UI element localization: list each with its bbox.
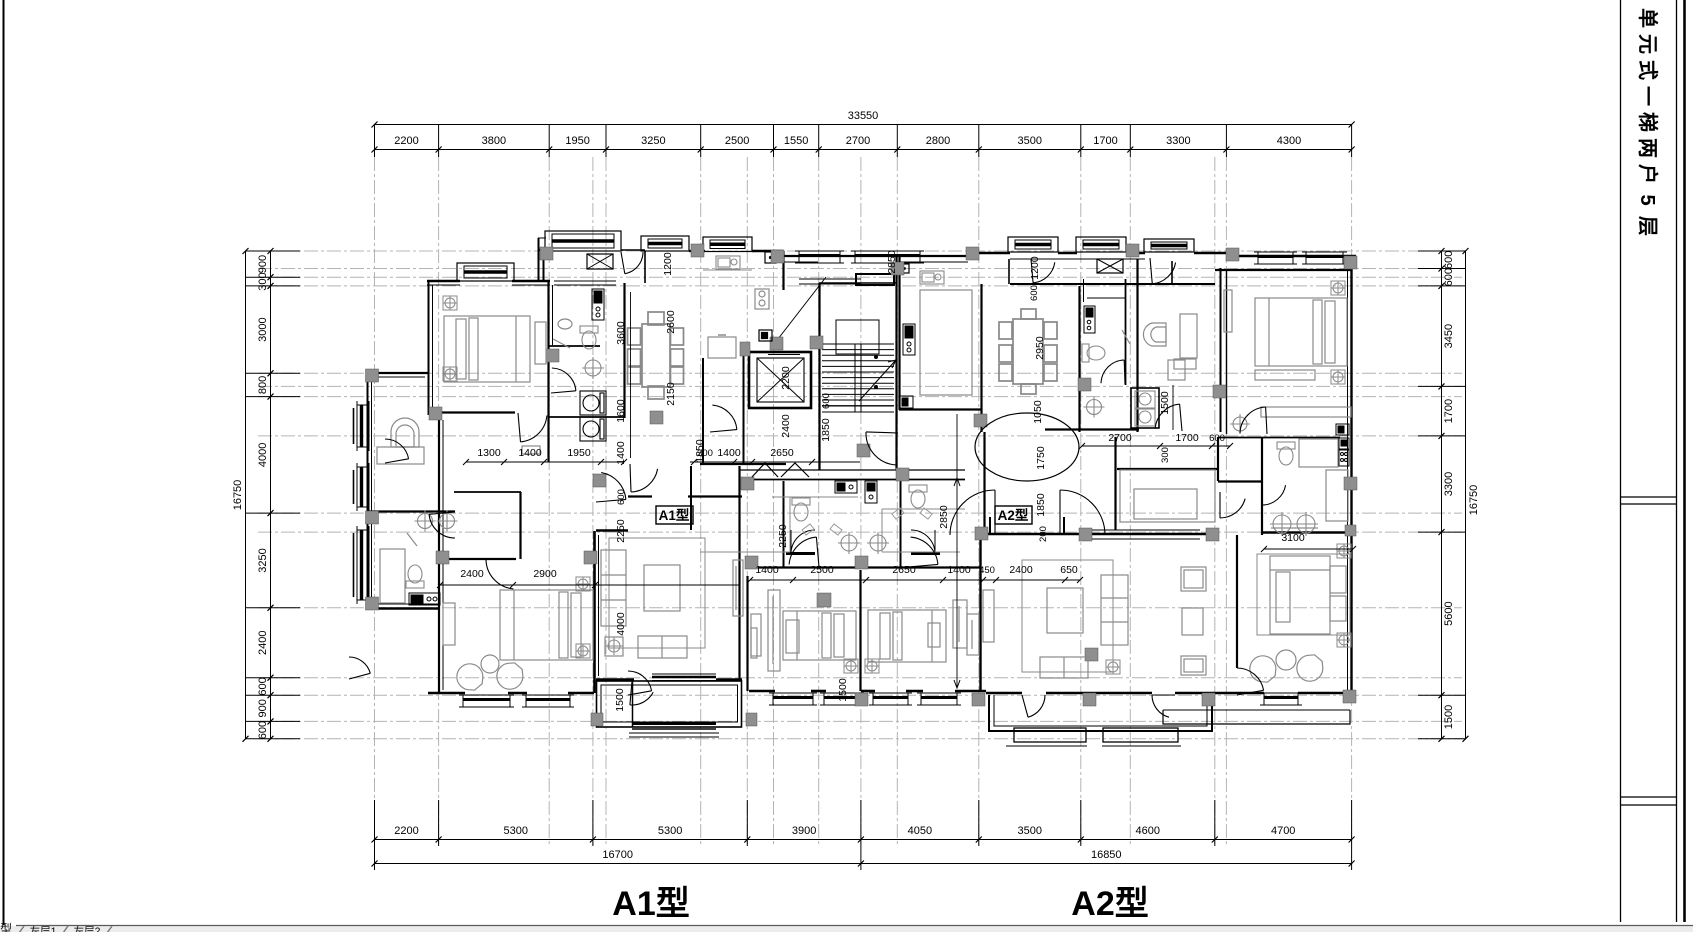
svg-text:2800: 2800: [926, 135, 950, 147]
svg-text:16700: 16700: [602, 849, 633, 861]
svg-text:4700: 4700: [1271, 825, 1295, 837]
svg-text:2150: 2150: [665, 382, 677, 406]
svg-text:A2型: A2型: [998, 507, 1029, 523]
svg-text:2250: 2250: [615, 519, 627, 543]
svg-text:600: 600: [257, 721, 269, 739]
svg-text:2400: 2400: [460, 568, 484, 580]
svg-text:800: 800: [257, 376, 269, 394]
svg-text:900: 900: [257, 255, 269, 273]
svg-text:200: 200: [1038, 526, 1049, 542]
svg-text:3500: 3500: [1018, 135, 1042, 147]
svg-text:梯: 梯: [1636, 112, 1660, 132]
svg-text:1550: 1550: [784, 135, 808, 147]
svg-text:2850: 2850: [938, 505, 950, 529]
svg-text:2650: 2650: [892, 564, 916, 576]
svg-text:4300: 4300: [1277, 135, 1301, 147]
svg-text:300: 300: [257, 272, 269, 290]
svg-text:3250: 3250: [257, 548, 269, 572]
svg-text:4050: 4050: [908, 825, 932, 837]
svg-text:33550: 33550: [848, 110, 879, 122]
svg-text:3900: 3900: [792, 825, 816, 837]
svg-text:3300: 3300: [1443, 472, 1455, 496]
svg-text:层: 层: [1636, 216, 1658, 236]
svg-text:600: 600: [257, 677, 269, 695]
svg-text:1700: 1700: [1093, 135, 1117, 147]
svg-text:左层2: 左层2: [74, 925, 101, 932]
svg-text:16750: 16750: [1468, 485, 1480, 516]
svg-text:600: 600: [1029, 285, 1040, 301]
svg-text:1400: 1400: [755, 564, 779, 576]
svg-text:1950: 1950: [565, 135, 589, 147]
svg-text:3600: 3600: [615, 321, 627, 345]
svg-text:1200: 1200: [1029, 256, 1041, 280]
svg-text:1750: 1750: [1035, 446, 1047, 470]
svg-text:900: 900: [257, 699, 269, 717]
svg-text:1500: 1500: [1159, 391, 1171, 415]
svg-text:16750: 16750: [232, 480, 244, 511]
svg-text:1500: 1500: [1443, 705, 1455, 729]
svg-text:5300: 5300: [658, 825, 682, 837]
svg-text:5600: 5600: [1443, 601, 1455, 625]
svg-text:650: 650: [1060, 564, 1078, 576]
svg-text:3800: 3800: [482, 135, 506, 147]
svg-text:4000: 4000: [615, 612, 627, 636]
svg-text:2500: 2500: [810, 564, 834, 576]
svg-text:3500: 3500: [1018, 825, 1042, 837]
svg-text:3000: 3000: [257, 317, 269, 341]
svg-text:两: 两: [1636, 138, 1658, 158]
svg-text:2400: 2400: [780, 414, 792, 438]
svg-text:1400: 1400: [518, 447, 542, 459]
svg-text:2950: 2950: [1034, 336, 1046, 360]
svg-text:1400: 1400: [717, 447, 741, 459]
svg-text:1850: 1850: [694, 439, 706, 463]
svg-text:1050: 1050: [1032, 400, 1044, 424]
svg-text:600: 600: [1209, 433, 1225, 444]
svg-text:1200: 1200: [662, 252, 674, 276]
svg-text:5: 5: [1636, 194, 1658, 205]
svg-text:元: 元: [1636, 34, 1658, 54]
svg-text:5300: 5300: [504, 825, 528, 837]
svg-text:1500: 1500: [614, 688, 626, 712]
svg-text:型: 型: [0, 922, 12, 932]
svg-text:2900: 2900: [533, 568, 557, 580]
svg-text:4600: 4600: [1136, 825, 1160, 837]
svg-text:1300: 1300: [477, 447, 501, 459]
svg-text:A1型: A1型: [659, 507, 690, 523]
svg-text:2500: 2500: [725, 135, 749, 147]
svg-text:A1型: A1型: [612, 885, 689, 923]
svg-text:式: 式: [1636, 60, 1659, 80]
svg-text:2250: 2250: [777, 524, 789, 548]
svg-text:A2型: A2型: [1071, 885, 1148, 923]
svg-text:一: 一: [1636, 86, 1658, 106]
svg-text:1850: 1850: [820, 418, 832, 442]
svg-text:3300: 3300: [1166, 135, 1190, 147]
svg-text:1950: 1950: [567, 447, 591, 459]
svg-text:2400: 2400: [257, 631, 269, 655]
svg-text:16850: 16850: [1091, 849, 1122, 861]
svg-text:左层1: 左层1: [30, 925, 57, 932]
svg-text:600: 600: [1443, 251, 1455, 269]
svg-text:1600: 1600: [615, 399, 627, 423]
svg-text:600: 600: [616, 489, 627, 505]
svg-text:450: 450: [979, 565, 995, 576]
svg-text:1850: 1850: [1035, 493, 1047, 517]
svg-text:3100: 3100: [1281, 532, 1305, 544]
svg-text:3450: 3450: [1443, 324, 1455, 348]
svg-text:1400: 1400: [615, 441, 627, 465]
svg-text:300: 300: [1160, 447, 1171, 463]
svg-text:2700: 2700: [846, 135, 870, 147]
svg-text:2200: 2200: [780, 366, 792, 390]
svg-text:2650: 2650: [770, 447, 794, 459]
svg-text:2200: 2200: [394, 135, 418, 147]
svg-text:户: 户: [1636, 164, 1660, 184]
svg-text:1700: 1700: [1443, 399, 1455, 423]
svg-text:1400: 1400: [947, 564, 971, 576]
svg-text:2850: 2850: [886, 250, 898, 274]
svg-text:2600: 2600: [665, 310, 677, 334]
svg-text:3250: 3250: [641, 135, 665, 147]
svg-text:单: 单: [1636, 8, 1660, 28]
svg-text:2200: 2200: [394, 825, 418, 837]
svg-text:1500: 1500: [837, 678, 849, 702]
svg-text:600: 600: [1443, 268, 1455, 286]
svg-text:4000: 4000: [257, 443, 269, 467]
svg-text:2700: 2700: [1108, 432, 1132, 444]
svg-text:1700: 1700: [1175, 432, 1199, 444]
svg-text:600: 600: [821, 393, 832, 409]
svg-text:2400: 2400: [1009, 564, 1033, 576]
